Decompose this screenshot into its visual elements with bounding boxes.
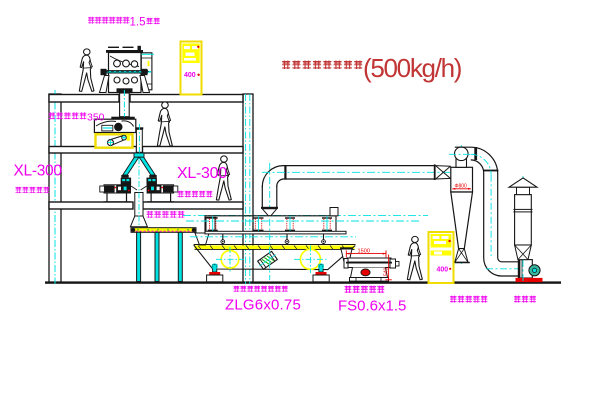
svg-text:XL-300: XL-300 [14, 163, 63, 180]
svg-text:400: 400 [184, 72, 196, 79]
svg-text:350: 350 [87, 112, 105, 124]
svg-text:1500: 1500 [358, 248, 370, 254]
svg-text:1.5: 1.5 [130, 17, 146, 29]
svg-text:ZLG6x0.75: ZLG6x0.75 [225, 297, 301, 314]
svg-text:(500kg/h): (500kg/h) [363, 53, 462, 83]
svg-text:XL-300: XL-300 [177, 165, 227, 182]
svg-text:540: 540 [384, 267, 390, 276]
svg-text:400: 400 [437, 267, 449, 274]
svg-text:FS0.6x1.5: FS0.6x1.5 [338, 298, 406, 315]
svg-text:Φ800: Φ800 [455, 184, 468, 190]
